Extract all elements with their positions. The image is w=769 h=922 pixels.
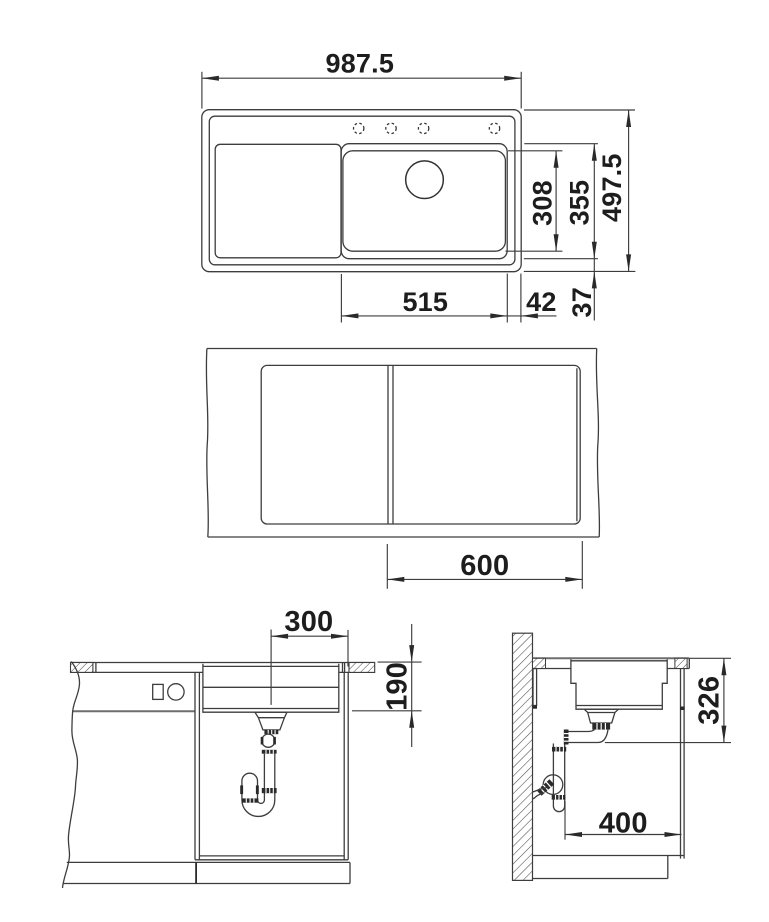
svg-text:515: 515	[402, 287, 448, 317]
svg-text:300: 300	[284, 606, 333, 638]
svg-text:326: 326	[693, 676, 725, 725]
svg-text:190: 190	[382, 662, 414, 711]
svg-text:37: 37	[567, 287, 597, 317]
svg-text:987.5: 987.5	[326, 49, 395, 79]
svg-text:497.5: 497.5	[597, 153, 627, 222]
svg-text:400: 400	[599, 807, 648, 839]
svg-text:42: 42	[526, 287, 556, 317]
svg-text:308: 308	[528, 180, 558, 226]
svg-text:355: 355	[564, 180, 594, 226]
svg-text:600: 600	[460, 550, 509, 582]
